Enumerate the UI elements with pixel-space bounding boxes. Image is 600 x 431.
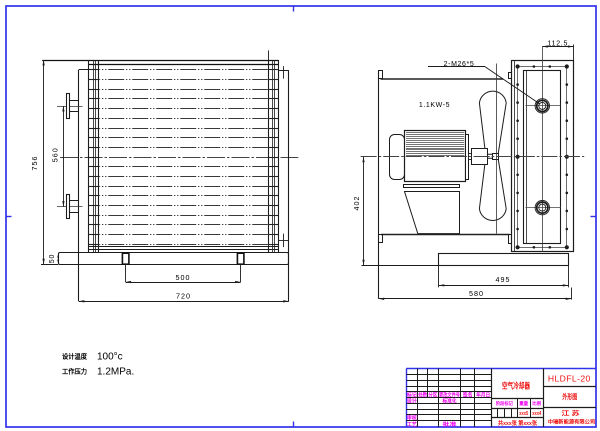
svg-text:重量: 重量 [519,400,528,407]
svg-text:xxx5: xxx5 [519,411,528,417]
svg-text:批准: 批准 [443,421,457,428]
svg-text:50: 50 [49,254,56,263]
svg-text:495: 495 [496,275,511,284]
svg-text:402: 402 [352,196,361,211]
svg-text:标记: 标记 [406,392,417,399]
svg-text:1.1KW-5: 1.1KW-5 [419,102,450,109]
svg-text:2-M26*5: 2-M26*5 [444,61,475,68]
svg-text:阶段标记: 阶段标记 [496,400,513,407]
svg-text:标准化: 标准化 [442,398,457,405]
svg-text:共xxx张 第xxx张: 共xxx张 第xxx张 [498,419,538,427]
svg-text:工作压力: 工作压力 [62,366,87,375]
svg-text:xxx4: xxx4 [532,411,541,417]
svg-text:江 苏: 江 苏 [562,410,580,418]
svg-text:112.5: 112.5 [548,40,569,47]
svg-text:审核: 审核 [407,415,417,422]
svg-text:空气冷却器: 空气冷却器 [502,380,531,390]
svg-text:560: 560 [50,147,59,162]
svg-text:580: 580 [469,289,484,298]
svg-text:年月日: 年月日 [476,392,490,399]
svg-text:设计: 设计 [407,398,417,405]
svg-text:720: 720 [176,292,191,301]
svg-text:比例: 比例 [532,400,541,407]
svg-text:中瑞新能源有限公司: 中瑞新能源有限公司 [548,418,596,426]
svg-text:HLDFL-20: HLDFL-20 [548,374,591,384]
svg-text:工艺: 工艺 [407,421,417,428]
svg-text:分区: 分区 [428,392,437,399]
svg-text:设计温度: 设计温度 [62,351,88,360]
svg-text:100°c: 100°c [97,351,123,362]
svg-text:500: 500 [176,273,191,282]
svg-text:更改文件号: 更改文件号 [439,392,460,399]
svg-text:756: 756 [30,156,39,171]
svg-text:签名: 签名 [462,392,473,399]
svg-text:1.2MPa.: 1.2MPa. [97,366,134,377]
svg-text:处数: 处数 [417,392,428,399]
svg-text:外形图: 外形图 [562,392,577,401]
